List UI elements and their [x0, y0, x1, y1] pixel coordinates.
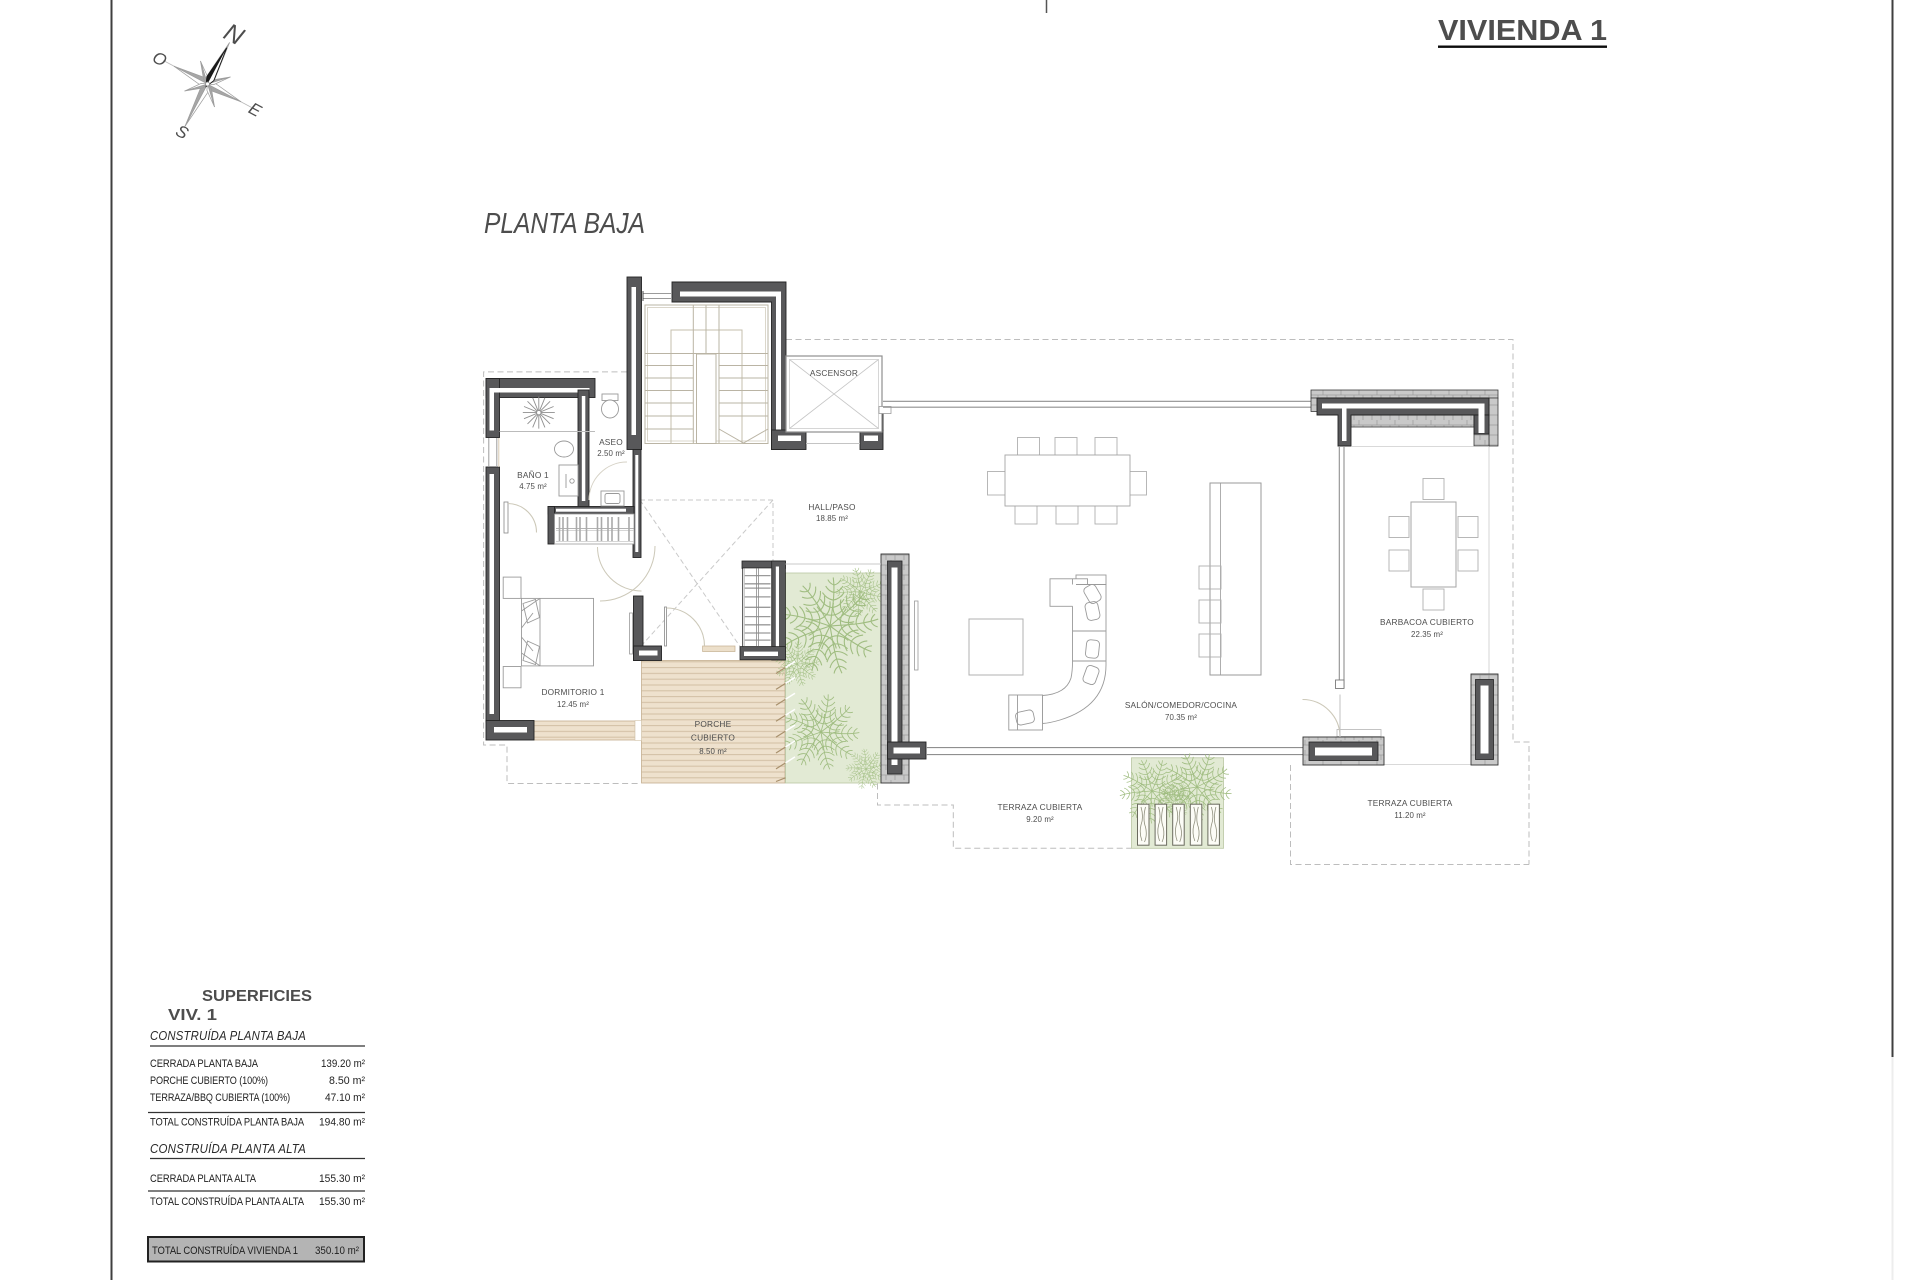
- svg-text:TOTAL CONSTRUÍDA PLANTA ALTA: TOTAL CONSTRUÍDA PLANTA ALTA: [150, 1195, 305, 1208]
- svg-text:8.50 m²: 8.50 m²: [699, 747, 727, 756]
- svg-text:18.85 m²: 18.85 m²: [816, 514, 848, 523]
- svg-text:TERRAZA/BBQ CUBIERTA (100%): TERRAZA/BBQ CUBIERTA (100%): [150, 1092, 290, 1104]
- svg-text:CERRADA PLANTA BAJA: CERRADA PLANTA BAJA: [150, 1058, 259, 1070]
- svg-text:139.20 m²: 139.20 m²: [321, 1058, 365, 1070]
- svg-text:155.30 m²: 155.30 m²: [319, 1173, 365, 1185]
- svg-text:TERRAZA CUBIERTA: TERRAZA CUBIERTA: [1368, 798, 1453, 808]
- svg-text:CUBIERTO: CUBIERTO: [691, 733, 736, 743]
- svg-text:PORCHE CUBIERTO (100%): PORCHE CUBIERTO (100%): [150, 1075, 268, 1087]
- svg-text:22.35 m²: 22.35 m²: [1411, 630, 1443, 639]
- svg-text:350.10 m²: 350.10 m²: [315, 1245, 359, 1257]
- svg-text:VIV. 1: VIV. 1: [168, 1007, 217, 1024]
- svg-text:BAÑO 1: BAÑO 1: [517, 470, 549, 480]
- svg-text:CONSTRUÍDA PLANTA BAJA: CONSTRUÍDA PLANTA BAJA: [150, 1028, 306, 1043]
- svg-text:194.80 m²: 194.80 m²: [319, 1117, 365, 1129]
- svg-text:PORCHE: PORCHE: [695, 719, 732, 729]
- svg-text:ASCENSOR: ASCENSOR: [810, 368, 858, 378]
- svg-text:TOTAL CONSTRUÍDA VIVIENDA 1: TOTAL CONSTRUÍDA VIVIENDA 1: [152, 1244, 298, 1257]
- svg-text:155.30 m²: 155.30 m²: [319, 1196, 365, 1208]
- svg-text:12.45 m²: 12.45 m²: [557, 700, 589, 709]
- svg-text:CONSTRUÍDA PLANTA ALTA: CONSTRUÍDA PLANTA ALTA: [150, 1141, 306, 1156]
- svg-text:8.50 m²: 8.50 m²: [329, 1075, 365, 1087]
- svg-text:VIVIENDA 1: VIVIENDA 1: [1438, 15, 1607, 47]
- svg-text:PLANTA BAJA: PLANTA BAJA: [484, 208, 645, 240]
- svg-text:4.75 m²: 4.75 m²: [519, 482, 547, 491]
- svg-text:TOTAL CONSTRUÍDA PLANTA BAJA: TOTAL CONSTRUÍDA PLANTA BAJA: [150, 1116, 305, 1129]
- svg-text:SALÓN/COMEDOR/COCINA: SALÓN/COMEDOR/COCINA: [1125, 700, 1238, 710]
- svg-text:11.20 m²: 11.20 m²: [1394, 811, 1426, 820]
- svg-text:2.50 m²: 2.50 m²: [597, 449, 625, 458]
- svg-text:70.35 m²: 70.35 m²: [1165, 713, 1197, 722]
- svg-text:SUPERFICIES: SUPERFICIES: [202, 988, 312, 1005]
- svg-text:ASEO: ASEO: [599, 437, 623, 447]
- svg-text:DORMITORIO 1: DORMITORIO 1: [541, 687, 604, 697]
- svg-text:BARBACOA CUBIERTO: BARBACOA CUBIERTO: [1380, 617, 1474, 627]
- svg-text:HALL/PASO: HALL/PASO: [808, 502, 856, 512]
- svg-text:TERRAZA CUBIERTA: TERRAZA CUBIERTA: [998, 802, 1083, 812]
- svg-text:47.10 m²: 47.10 m²: [325, 1092, 365, 1104]
- svg-text:9.20 m²: 9.20 m²: [1026, 815, 1054, 824]
- svg-text:CERRADA PLANTA ALTA: CERRADA PLANTA ALTA: [150, 1173, 257, 1185]
